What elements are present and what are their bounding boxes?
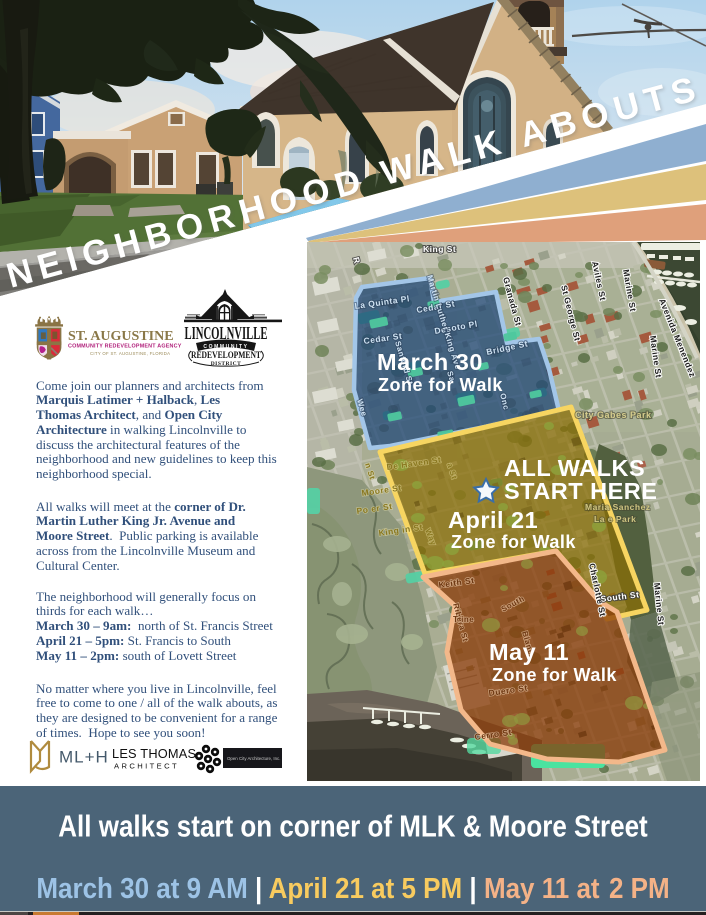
svg-text:Zone for Walk: Zone for Walk — [378, 375, 503, 395]
svg-text:La e Park: La e Park — [594, 514, 636, 524]
svg-text:ML+H: ML+H — [59, 748, 109, 767]
svg-text:ST. AUGUSTINE: ST. AUGUSTINE — [68, 329, 174, 344]
svg-text:T ine: T ine — [453, 615, 474, 624]
svg-text:King St: King St — [423, 244, 456, 254]
svg-text:April 21: April 21 — [448, 507, 538, 533]
svg-text:Open City Architecture, Inc.: Open City Architecture, Inc. — [227, 756, 280, 761]
svg-text:Zone for Walk: Zone for Walk — [492, 665, 617, 685]
svg-text:March 30: March 30 — [377, 349, 483, 375]
svg-text:City Gabes Park: City Gabes Park — [575, 410, 652, 420]
svg-text:CITY OF ST. AUGUSTINE, FLORIDA: CITY OF ST. AUGUSTINE, FLORIDA — [90, 351, 170, 356]
svg-text:START HERE: START HERE — [504, 478, 657, 504]
svg-text:LES THOMAS: LES THOMAS — [112, 746, 196, 761]
svg-text:COMMUNITY REDEVELOPMENT AGENCY: COMMUNITY REDEVELOPMENT AGENCY — [68, 344, 182, 350]
svg-text:COMMUNITY: COMMUNITY — [203, 344, 248, 350]
svg-text:REDEVELOPMENT: REDEVELOPMENT — [191, 350, 261, 360]
svg-text:ARCHITECT: ARCHITECT — [114, 762, 179, 771]
svg-text:Zone for Walk: Zone for Walk — [451, 532, 576, 552]
svg-text:May 11: May 11 — [489, 639, 569, 665]
